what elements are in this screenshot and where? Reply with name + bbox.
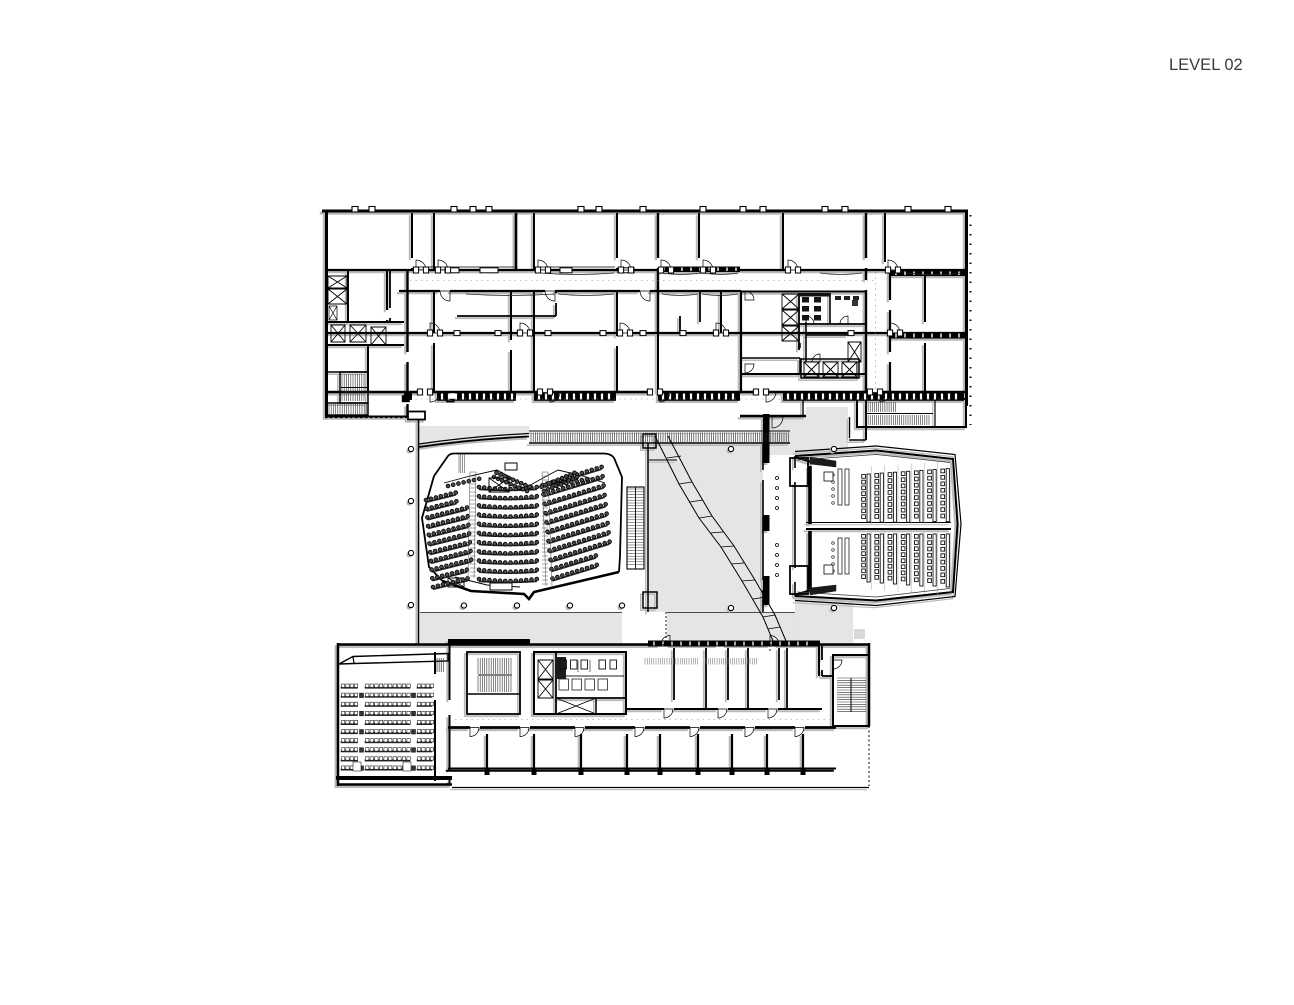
svg-text:LEVEL 02: LEVEL 02: [1169, 56, 1243, 74]
